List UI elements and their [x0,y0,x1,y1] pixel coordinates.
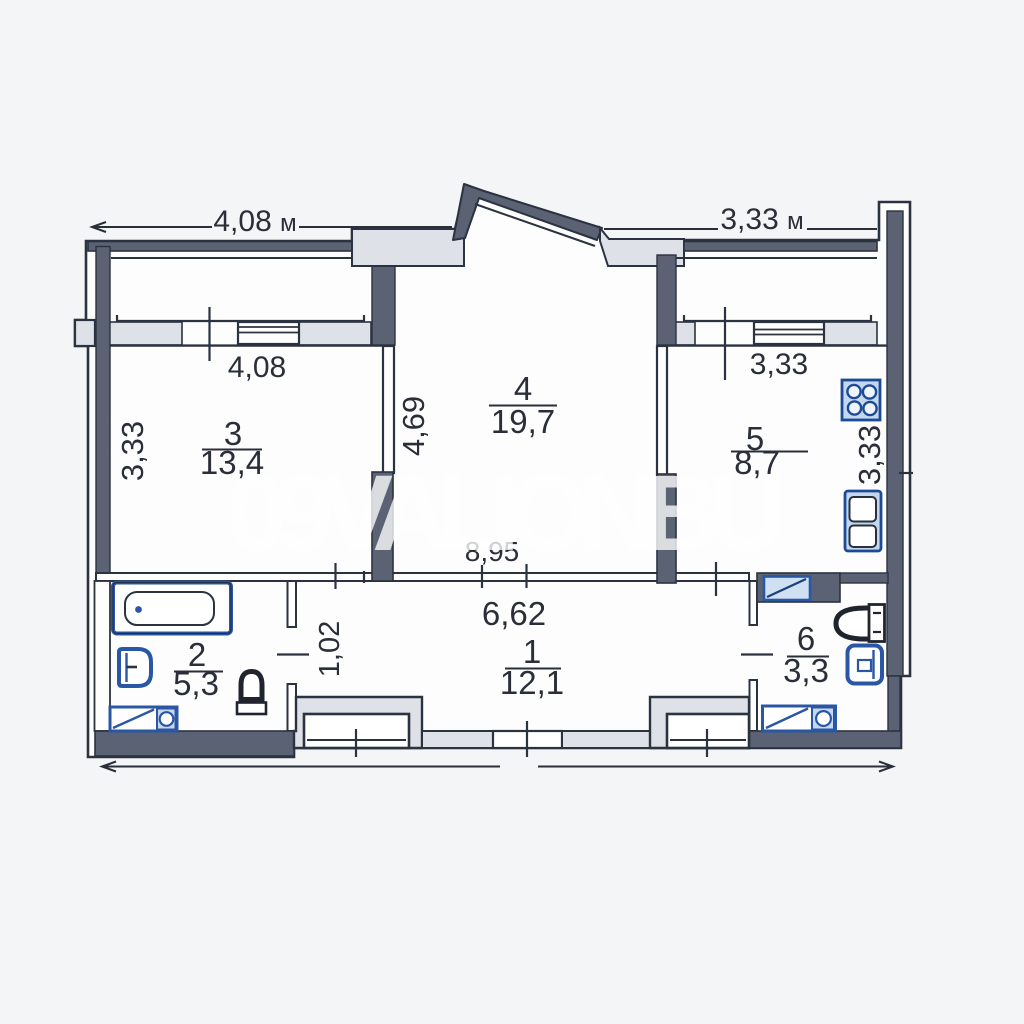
svg-text:3,33 м: 3,33 м [720,203,803,236]
svg-text:1,02: 1,02 [314,621,346,677]
svg-text:12,1: 12,1 [500,664,564,701]
svg-text:4,08: 4,08 [228,351,286,384]
svg-text:19,7: 19,7 [491,403,555,440]
svg-text:3,3: 3,3 [783,652,829,689]
svg-text:4,69: 4,69 [396,396,431,456]
svg-text:6,62: 6,62 [482,595,546,632]
svg-text:4: 4 [514,370,532,407]
svg-text:3,33: 3,33 [852,425,887,485]
svg-text:3,33: 3,33 [750,348,808,381]
svg-text:3,33: 3,33 [115,421,150,481]
svg-text:4,08 м: 4,08 м [213,205,296,238]
svg-text:09VALIONBU: 09VALIONBU [227,452,780,573]
